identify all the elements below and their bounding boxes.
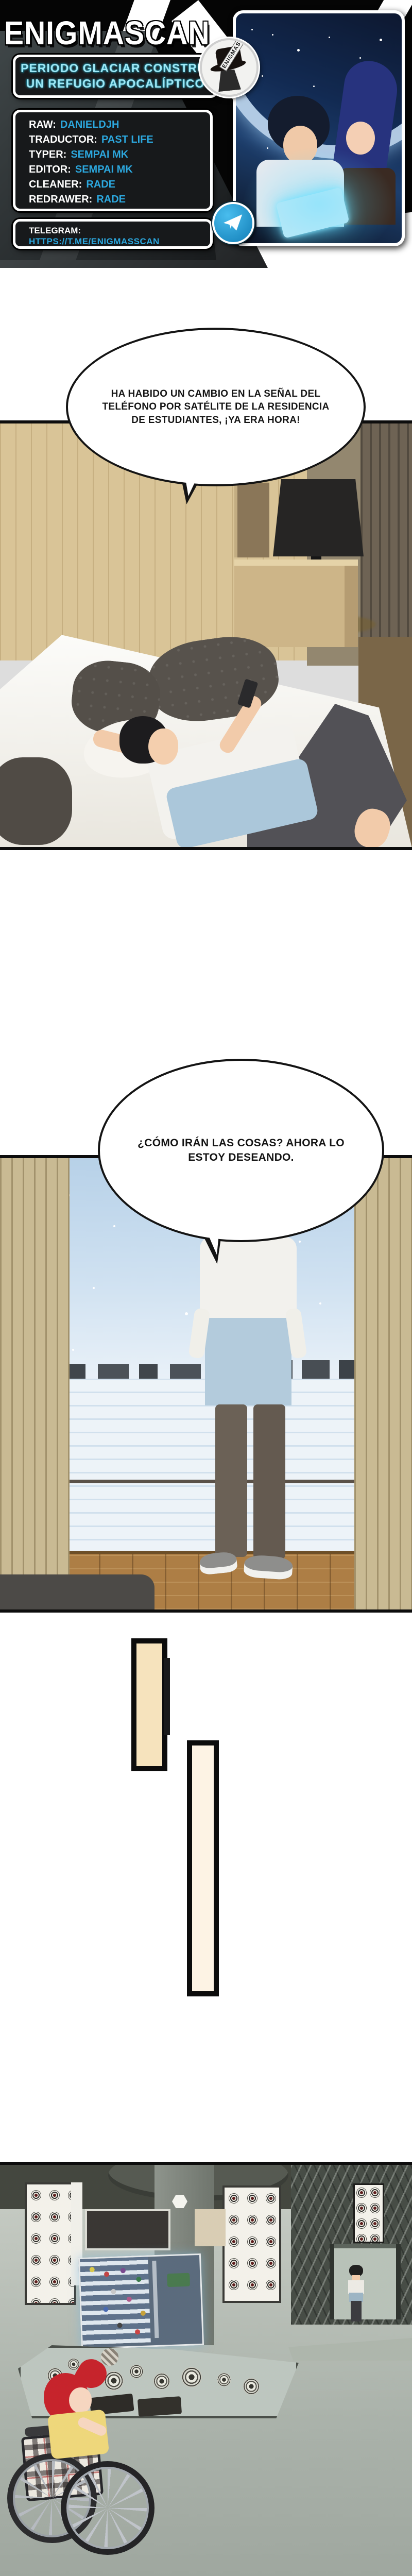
scanlation-header: ENIGMASCAN PERIODO GLACIAR CONSTRUÍ UN R…	[0, 0, 412, 286]
man-leg	[215, 1404, 247, 1557]
credit-row: TRADUCTOR:PAST LIFE	[29, 132, 210, 147]
speech-bubble-2: ¿CÓMO IRÁN LAS COSAS? AHORA LO ESTOY DES…	[98, 1059, 384, 1242]
window-frame-left	[0, 1158, 70, 1609]
series-cover-art	[233, 10, 405, 246]
scan-group-logo: ENIGMASCAN	[4, 14, 231, 53]
bubble-tail-fill	[204, 1225, 223, 1256]
console-dial	[129, 2364, 144, 2379]
speech-bubble-1: HA HABIDO UN CAMBIO EN LA SEÑAL DEL TELÉ…	[66, 328, 366, 486]
telegram-icon	[212, 202, 254, 244]
wall-panel-beige	[195, 2209, 226, 2246]
series-title: PERIODO GLACIAR CONSTRUÍ UN REFUGIO APOC…	[20, 61, 211, 92]
hex-pattern-wall	[222, 2185, 281, 2303]
console-dial	[216, 2372, 232, 2387]
wheelchair-wheel	[61, 2461, 154, 2555]
pillow	[0, 757, 72, 845]
distant-man-legs	[351, 2301, 362, 2321]
credit-row: REDRAWER:RADE	[29, 192, 210, 207]
lamp-shade	[273, 479, 364, 556]
console-dial	[180, 2366, 203, 2388]
man-shirt-blue	[205, 1318, 291, 1405]
transition-sliver-1	[131, 1638, 167, 1771]
spy-hat-icon: ENIGMASCAN	[200, 38, 259, 97]
doorway	[330, 2244, 401, 2319]
credit-row: CLEANER:RADE	[29, 177, 210, 192]
credit-row: RAW:DANIELDJH	[29, 117, 210, 132]
balcony-rail	[62, 1480, 360, 1483]
credit-row: EDITOR:SEMPAI MK	[29, 162, 210, 177]
bed-corner	[0, 1574, 154, 1609]
manga-page: ENIGMASCAN PERIODO GLACIAR CONSTRUÍ UN R…	[0, 0, 412, 2576]
holo-screen	[78, 2253, 204, 2349]
wall-monitor	[85, 2209, 170, 2250]
console-dial	[242, 2377, 261, 2396]
telegram-panel: TELEGRAM: HTTPS://T.ME/ENIGMASSCAN	[13, 219, 213, 249]
nightstand	[234, 560, 358, 647]
credit-row: TYPER:SEMPAI MK	[29, 147, 210, 162]
wall-niche	[234, 480, 269, 557]
series-title-panel: PERIODO GLACIAR CONSTRUÍ UN REFUGIO APOC…	[13, 55, 218, 98]
window-frame-right	[354, 1158, 412, 1609]
console-keypanel	[138, 2396, 182, 2417]
console-dial	[152, 2372, 171, 2391]
sliver-shadow	[164, 1658, 170, 1735]
credits-panel: RAW:DANIELDJH TRADUCTOR:PAST LIFE TYPER:…	[13, 110, 213, 211]
man-face	[148, 728, 178, 765]
telegram-url: HTTPS://T.ME/ENIGMASSCAN	[29, 236, 210, 247]
girl-face	[69, 2387, 92, 2413]
transition-sliver-2	[187, 1740, 219, 1996]
telegram-label: TELEGRAM:	[29, 225, 210, 236]
man-leg	[253, 1404, 285, 1559]
panel-control-room	[0, 2162, 412, 2576]
cover-stars	[251, 29, 253, 30]
cover-glow	[236, 142, 402, 245]
holo-truck	[167, 2273, 190, 2287]
wall-emblem	[353, 2183, 384, 2243]
hex-pattern-wall	[25, 2182, 76, 2305]
striped-ball	[101, 2348, 118, 2366]
distant-man-shirt	[348, 2280, 364, 2294]
